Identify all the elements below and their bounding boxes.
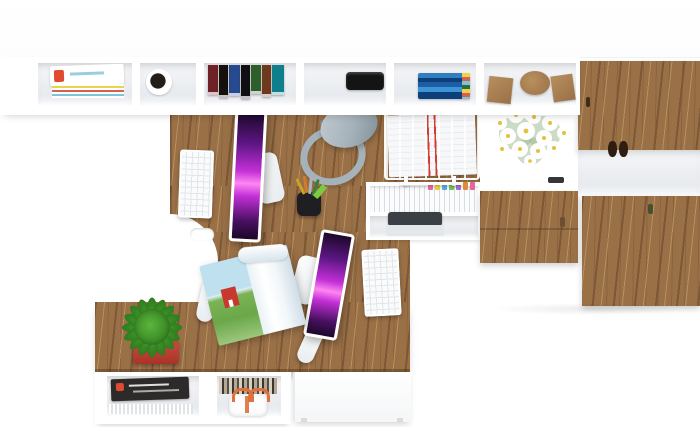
tray-wire-frame xyxy=(384,110,480,180)
shelf-slot-detail xyxy=(548,177,564,183)
book-spine xyxy=(262,65,271,97)
magazine-red-badge xyxy=(116,383,124,391)
magazine-logo xyxy=(54,70,64,82)
wood-cube xyxy=(487,76,514,104)
book-spine xyxy=(251,65,261,94)
coffee-mug xyxy=(146,69,172,95)
walnut-door-bottom xyxy=(582,196,700,306)
magazine-title-line xyxy=(133,389,179,393)
magazine-stack-cover xyxy=(111,377,190,402)
cabinet-floor-shadow xyxy=(490,303,690,315)
magazine-headline xyxy=(70,71,104,75)
dark-figurine xyxy=(608,141,628,157)
book-row xyxy=(208,65,294,103)
magazine-cover xyxy=(50,64,125,87)
book-spine xyxy=(219,65,228,98)
wood-disc xyxy=(520,71,550,95)
wooden-decor-blocks xyxy=(486,69,574,105)
under-desk-cabinet xyxy=(366,182,482,240)
shelf-opening-bag xyxy=(217,376,281,416)
walnut-drawer-front xyxy=(480,191,578,263)
keyboard-workstation-1 xyxy=(178,149,214,218)
drawer-pedestal xyxy=(293,372,411,422)
blue-book-stack xyxy=(418,73,470,99)
magazine-stack-edges xyxy=(52,84,124,98)
book-spine xyxy=(272,65,284,95)
bag-handle xyxy=(248,388,270,402)
white-cubby xyxy=(578,150,700,196)
tray-rail xyxy=(400,182,462,185)
bag-ribbon xyxy=(245,396,249,413)
keyboard-workstation-2 xyxy=(361,248,401,317)
wall-band xyxy=(0,0,700,58)
book-spine xyxy=(229,65,240,96)
shelf-opening-magazines xyxy=(107,376,199,416)
door-handle xyxy=(648,204,653,214)
red-house-photo xyxy=(221,286,240,308)
cactus-center xyxy=(134,309,170,345)
book-spine xyxy=(241,65,250,99)
magazine-title-line xyxy=(129,383,169,386)
book-spine xyxy=(208,65,218,95)
wall-shelf-unit xyxy=(0,57,580,115)
pedestal-foot xyxy=(301,418,307,422)
wood-cube xyxy=(550,74,575,103)
pen-cup xyxy=(295,180,325,218)
printer-cubby xyxy=(370,216,478,238)
white-gift-bag xyxy=(229,394,267,416)
walnut-door-top xyxy=(578,61,700,151)
drawer-handle xyxy=(560,217,565,227)
black-speaker xyxy=(346,72,384,90)
file-folders xyxy=(370,186,478,212)
office-topview-scene xyxy=(0,0,700,427)
wire-paper-tray xyxy=(384,110,480,186)
printer-body xyxy=(386,225,444,236)
printer xyxy=(388,212,442,226)
desk-left-edge xyxy=(170,108,172,214)
pedestal-foot xyxy=(397,418,403,422)
door-handle xyxy=(586,97,590,107)
cactus-plant xyxy=(112,288,192,368)
cable-grommet xyxy=(190,228,214,241)
magazine-pages xyxy=(109,404,193,414)
side-table-shelf-unit xyxy=(95,372,291,424)
